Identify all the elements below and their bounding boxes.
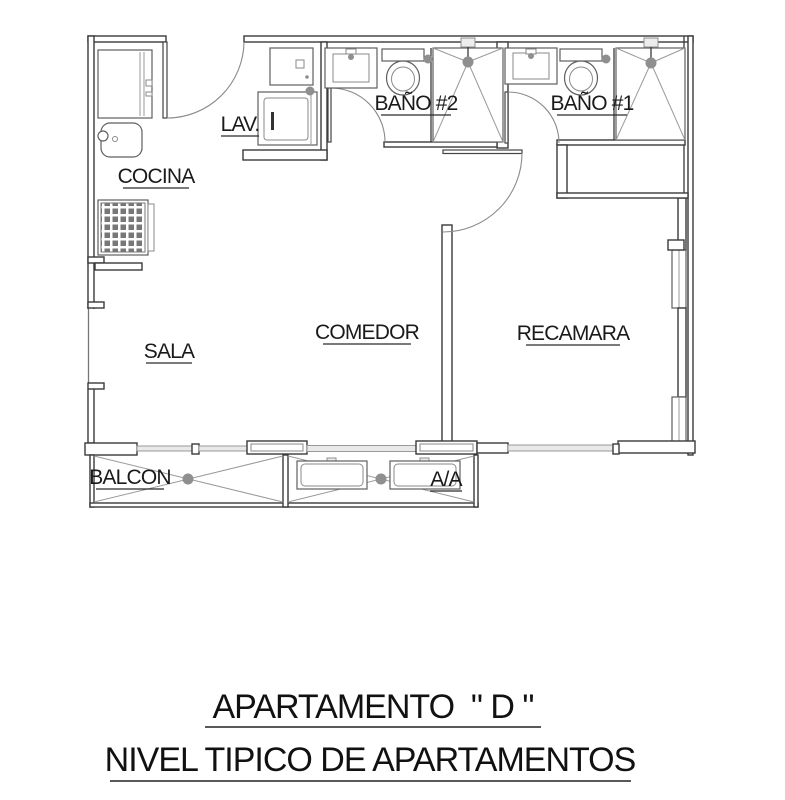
sala-text: SALA <box>144 340 195 363</box>
lav-text: LAV. <box>221 113 260 136</box>
south-glazing <box>137 441 619 454</box>
laundry-fixtures <box>258 48 317 145</box>
bano1-text: BAÑO #1 <box>550 91 633 115</box>
comedor-text: COMEDOR <box>315 321 420 344</box>
bathroom1-fixtures <box>505 38 685 140</box>
washer-icon <box>258 87 317 146</box>
sliding-panel-2 <box>416 441 477 454</box>
balcony-drain <box>183 474 194 485</box>
sliding-panel-1 <box>247 441 307 454</box>
laundry-cabinet <box>270 48 313 85</box>
plan-title: APARTAMENTO " D " <box>212 688 533 726</box>
title-block: APARTAMENTO " D " NIVEL TIPICO DE APARTA… <box>105 688 636 781</box>
stove <box>98 200 154 255</box>
ac-ledge-drain <box>376 474 387 485</box>
bath2-toilet <box>382 49 433 95</box>
bathroom2-fixtures <box>325 38 503 142</box>
label-sala: SALA <box>144 340 195 363</box>
kitchen-fixtures <box>98 50 154 255</box>
label-bano2: BAÑO #2 <box>374 91 457 115</box>
recamara-south-window <box>508 445 613 451</box>
label-recamara: RECAMARA <box>517 322 630 345</box>
cocina-text: COCINA <box>118 165 196 188</box>
entry-door <box>163 42 244 118</box>
label-aa: A/A <box>430 468 463 491</box>
label-cocina: COCINA <box>118 165 196 188</box>
plan-subtitle: NIVEL TIPICO DE APARTAMENTOS <box>105 741 636 779</box>
floor-plan-canvas: COCINA LAV. BAÑO #2 BAÑO #1 SALA COMEDOR… <box>0 0 785 800</box>
balcon-text: BALCON <box>89 466 171 489</box>
bedroom-door <box>443 150 522 232</box>
bath2-vanity <box>325 48 377 88</box>
room-labels: COCINA LAV. BAÑO #2 BAÑO #1 SALA COMEDOR… <box>89 91 633 491</box>
label-balcon: BALCON <box>89 466 171 489</box>
bano2-text: BAÑO #2 <box>374 91 457 115</box>
bath2-shower <box>433 38 503 142</box>
closet-left-wall <box>557 145 567 198</box>
bath1-toilet <box>560 49 611 95</box>
floor-plan-page: COCINA LAV. BAÑO #2 BAÑO #1 SALA COMEDOR… <box>0 0 785 800</box>
refrigerator <box>98 50 152 118</box>
label-comedor: COMEDOR <box>315 321 420 344</box>
recamara-text: RECAMARA <box>517 322 630 345</box>
bath1-shower <box>616 38 685 140</box>
label-lav: LAV. <box>221 113 260 136</box>
closet-bottom-wall <box>557 193 688 198</box>
label-bano1: BAÑO #1 <box>550 91 633 115</box>
aa-text: A/A <box>430 468 462 491</box>
bath1-vanity <box>505 48 557 84</box>
kitchen-sink <box>98 123 142 157</box>
ac-unit-1 <box>297 458 367 489</box>
